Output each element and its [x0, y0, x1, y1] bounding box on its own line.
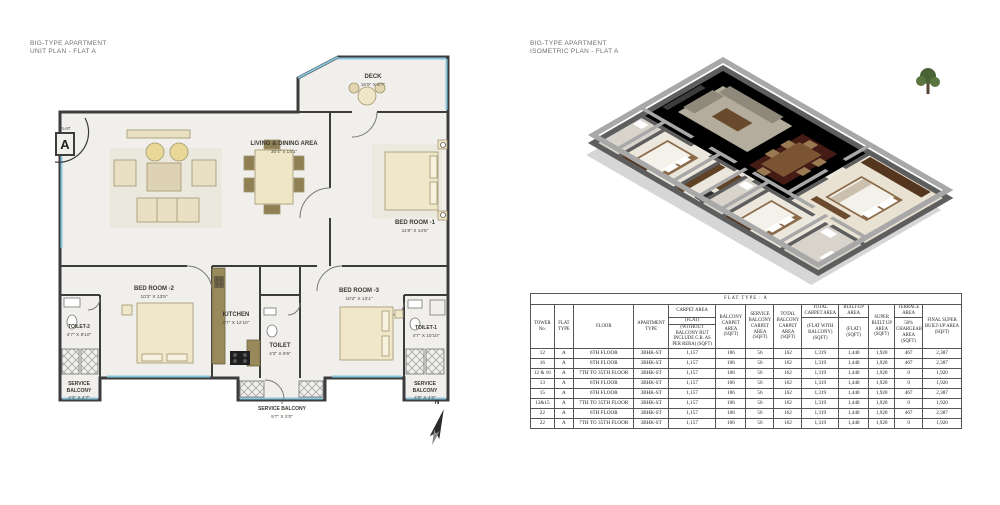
table-cell: A — [554, 389, 573, 399]
flat-badge-top: FLAT — [60, 126, 71, 131]
sb-left-dims: 4'3" X 4'7" — [68, 395, 90, 401]
table-cell: 1,157 — [668, 359, 715, 369]
table-cell: 7TH TO 35TH FLOOR — [574, 399, 634, 409]
table-cell: 1,440 — [839, 379, 869, 389]
table-cell: 1,920 — [869, 379, 895, 389]
table-cell: 1,440 — [839, 369, 869, 379]
table-cell: 6TH FLOOR — [574, 349, 634, 359]
table-row: 15A6TH FLOOR3BHK-ST1,157106561621,3191,4… — [531, 389, 962, 399]
table-cell: 162 — [774, 379, 802, 389]
table-cell: 2,387 — [923, 349, 962, 359]
table-cell: 0 — [895, 379, 923, 389]
table-cell: 1,319 — [802, 379, 839, 389]
table-cell: A — [554, 359, 573, 369]
table-cell: 56 — [746, 349, 774, 359]
deck-dims: 15'9" X 6'7" — [361, 82, 386, 88]
table-cell: 1,440 — [839, 419, 869, 429]
table-cell: 22 — [531, 419, 555, 429]
table-row: 16A6TH FLOOR3BHK-ST1,157106561621,3191,4… — [531, 359, 962, 369]
col-header-total-carpet-sub: (FLAT WITH BALCONY) (SQFT) — [802, 317, 839, 348]
table-cell: 162 — [774, 359, 802, 369]
table-cell: 1,440 — [839, 359, 869, 369]
table-cell: 1,157 — [668, 399, 715, 409]
table-cell: 1,319 — [802, 369, 839, 379]
col-header-terrace: TERRACE AREA — [895, 305, 923, 318]
table-cell: 6TH FLOOR — [574, 379, 634, 389]
col-header-floor: FLOOR — [574, 305, 634, 349]
table-cell: 162 — [774, 419, 802, 429]
table-cell: 106 — [716, 379, 746, 389]
table-cell: 106 — [716, 409, 746, 419]
table-cell: 162 — [774, 389, 802, 399]
col-header-balcony-carpet: BALCONY CARPET AREA (SQFT) — [716, 305, 746, 349]
table-cell: 12 — [531, 349, 555, 359]
table-cell: 56 — [746, 389, 774, 399]
table-cell: 1,920 — [923, 399, 962, 409]
sb-left-label2: BALCONY — [67, 388, 92, 394]
col-header-carpet-note: (WITHOUT BALCONY BUT INCLUDE C.B. AS PER… — [668, 324, 715, 349]
table-cell: 0 — [895, 369, 923, 379]
table-cell: A — [554, 369, 573, 379]
table-cell: 3BHK-ST — [634, 359, 668, 369]
table-cell: 1,920 — [869, 369, 895, 379]
table-cell: 1,920 — [869, 409, 895, 419]
table-cell: 1,157 — [668, 349, 715, 359]
table-cell: 56 — [746, 379, 774, 389]
table-cell: 467 — [895, 359, 923, 369]
col-header-carpet-area: CARPET AREA — [668, 305, 715, 318]
sb-mid-label: SERVICE BALCONY — [258, 406, 307, 412]
col-header-tower: TOWER No. — [531, 305, 555, 349]
table-cell: A — [554, 399, 573, 409]
table-cell: 3BHK-ST — [634, 419, 668, 429]
plant-icon — [916, 68, 940, 94]
table-cell: 56 — [746, 399, 774, 409]
sb-left-label1: SERVICE — [68, 381, 91, 387]
table-cell: 2,387 — [923, 359, 962, 369]
isometric-plan-drawing — [528, 52, 966, 292]
table-cell: 1,319 — [802, 349, 839, 359]
table-cell: 6TH FLOOR — [574, 389, 634, 399]
col-header-carpet-flat: (FLAT) — [668, 317, 715, 324]
table-cell: 467 — [895, 349, 923, 359]
toilet-label: TOILET — [269, 343, 291, 349]
table-cell: 1,319 — [802, 389, 839, 399]
col-header-final-super: FINAL SUPER BUILT-UP AREA (SQFT) — [923, 305, 962, 349]
deck-label: DECK — [364, 74, 382, 80]
page: BIG-TYPE APARTMENTUNIT PLAN - FLAT A BIG… — [0, 0, 1000, 505]
table-cell: 106 — [716, 359, 746, 369]
table-cell: 467 — [895, 409, 923, 419]
table-cell: 1,920 — [869, 389, 895, 399]
bed1-dims: 11'8" X 14'5" — [402, 228, 429, 234]
table-row: 13&15A7TH TO 35TH FLOOR3BHK-ST1,15710656… — [531, 399, 962, 409]
living-dims: 30'4" x 14'1" — [271, 149, 298, 155]
col-header-service-balcony: SERVICE BALCONY CARPET AREA (SQFT) — [746, 305, 774, 349]
table-cell: 1,440 — [839, 349, 869, 359]
table-cell: 56 — [746, 369, 774, 379]
sb-mid-dims: 9'7" X 2'0" — [271, 414, 293, 420]
table-cell: 6TH FLOOR — [574, 359, 634, 369]
table-row: 22A7TH TO 35TH FLOOR3BHK-ST1,15710656162… — [531, 419, 962, 429]
table-cell: 1,920 — [923, 369, 962, 379]
toilet2-dims: 4'7" X 8'10" — [67, 332, 92, 338]
table-cell: 1,440 — [839, 399, 869, 409]
table-cell: 56 — [746, 359, 774, 369]
toilet1-dims: 4'7" X 10'10" — [412, 333, 439, 339]
col-header-flat-type: FLAT TYPE — [554, 305, 573, 349]
table-cell: 1,920 — [869, 349, 895, 359]
table-cell: 3BHK-ST — [634, 389, 668, 399]
right-title-line1: BIG-TYPE APARTMENT — [530, 40, 607, 47]
table-cell: 3BHK-ST — [634, 399, 668, 409]
table-cell: 3BHK-ST — [634, 349, 668, 359]
bed2-label: BED ROOM -2 — [134, 286, 175, 292]
sb-right-dims: 4'9" X 4'3" — [414, 395, 436, 401]
table-cell: A — [554, 419, 573, 429]
table-row: 12 & 16A7TH TO 35TH FLOOR3BHK-ST1,157106… — [531, 369, 962, 379]
table-cell: 1,157 — [668, 389, 715, 399]
table-row: 22A6TH FLOOR3BHK-ST1,157106561621,3191,4… — [531, 409, 962, 419]
sb-right-label1: SERVICE — [414, 381, 437, 387]
table-cell: 1,920 — [923, 379, 962, 389]
bedroom1-furniture — [372, 140, 447, 220]
table-cell: 56 — [746, 409, 774, 419]
table-cell: 467 — [895, 389, 923, 399]
table-cell: 106 — [716, 369, 746, 379]
table-cell: 12 & 16 — [531, 369, 555, 379]
col-header-total-balcony: TOTAL BALCONY CARPET AREA (SQFT) — [774, 305, 802, 349]
table-cell: 106 — [716, 349, 746, 359]
unit-plan-drawing: FLAT A DECK 15'9" X 6'7" LIVING & DINING… — [52, 48, 454, 460]
table-cell: 15 — [531, 389, 555, 399]
table-cell: 3BHK-ST — [634, 369, 668, 379]
table-cell: 1,319 — [802, 419, 839, 429]
table-cell: 162 — [774, 409, 802, 419]
table-cell: 3BHK-ST — [634, 409, 668, 419]
toilet2-label: TOILET-2 — [68, 324, 90, 330]
bed3-label: BED ROOM -3 — [339, 288, 380, 294]
table-cell: 7TH TO 35TH FLOOR — [574, 369, 634, 379]
table-cell: 106 — [716, 399, 746, 409]
table-cell: 1,319 — [802, 359, 839, 369]
table-cell: 162 — [774, 399, 802, 409]
table-cell: 1,157 — [668, 369, 715, 379]
table-cell: 56 — [746, 419, 774, 429]
table-cell: 1,920 — [869, 359, 895, 369]
area-table-body: 12A6TH FLOOR3BHK-ST1,157106561621,3191,4… — [531, 349, 962, 429]
table-cell: 7TH TO 35TH FLOOR — [574, 419, 634, 429]
table-cell: 162 — [774, 349, 802, 359]
living-label: LIVING & DINING AREA — [250, 141, 318, 147]
bed1-label: BED ROOM -1 — [395, 220, 436, 226]
table-cell: 1,319 — [802, 399, 839, 409]
col-header-builtup: BUILT-UP AREA — [839, 305, 869, 318]
table-cell: 1,157 — [668, 379, 715, 389]
table-cell: 22 — [531, 409, 555, 419]
table-cell: 3BHK-ST — [634, 379, 668, 389]
kitchen-label: KITCHEN — [223, 312, 250, 318]
table-caption: FLAT TYPE : A — [531, 294, 962, 305]
toilet-dims: 4'3" X 9'6" — [269, 351, 291, 357]
bed2-dims: 10'2" X 13'5" — [140, 294, 167, 300]
col-header-terrace-sub: 50% CHARGEABLE AREA (SQFT) — [895, 317, 923, 348]
table-cell: 1,157 — [668, 419, 715, 429]
table-cell: 2,387 — [923, 389, 962, 399]
table-cell: 13&15 — [531, 399, 555, 409]
table-cell: 1,157 — [668, 409, 715, 419]
table-row: 13A6TH FLOOR3BHK-ST1,157106561621,3191,4… — [531, 379, 962, 389]
area-statement-table: FLAT TYPE : A TOWER No. FLAT TYPE FLOOR … — [530, 293, 962, 429]
table-cell: 0 — [895, 419, 923, 429]
toilet1-label: TOILET-1 — [415, 325, 437, 331]
table-cell: 1,920 — [869, 399, 895, 409]
kitchen-dims: 6'7" X 12'10" — [222, 320, 249, 326]
col-header-builtup-sub: (FLAT) (SQFT) — [839, 317, 869, 348]
north-compass-icon: N — [427, 399, 448, 447]
left-title-line1: BIG-TYPE APARTMENT — [30, 40, 107, 47]
table-cell: 106 — [716, 389, 746, 399]
col-header-apartment-type: APARTMENT TYPE — [634, 305, 668, 349]
table-cell: 0 — [895, 399, 923, 409]
table-cell: 162 — [774, 369, 802, 379]
iso-floor — [593, 68, 948, 273]
table-cell: 2,387 — [923, 409, 962, 419]
sb-right-label2: BALCONY — [413, 388, 438, 394]
bed3-dims: 10'2" X 13'1" — [345, 296, 372, 302]
flat-badge-letter: A — [60, 137, 70, 152]
table-cell: 1,920 — [923, 419, 962, 429]
table-cell: 1,440 — [839, 389, 869, 399]
table-cell: 1,920 — [869, 419, 895, 429]
table-cell: 16 — [531, 359, 555, 369]
col-header-total-carpet: TOTAL CARPET AREA — [802, 305, 839, 318]
table-cell: 1,319 — [802, 409, 839, 419]
table-cell: 13 — [531, 379, 555, 389]
table-cell: A — [554, 349, 573, 359]
table-cell: 106 — [716, 419, 746, 429]
table-cell: 6TH FLOOR — [574, 409, 634, 419]
north-label: N — [435, 399, 440, 406]
table-cell: A — [554, 379, 573, 389]
table-cell: 1,440 — [839, 409, 869, 419]
table-row: 12A6TH FLOOR3BHK-ST1,157106561621,3191,4… — [531, 349, 962, 359]
table-cell: A — [554, 409, 573, 419]
col-header-super-builtup: SUPER BUILT UP AREA (SQFT) — [869, 305, 895, 349]
